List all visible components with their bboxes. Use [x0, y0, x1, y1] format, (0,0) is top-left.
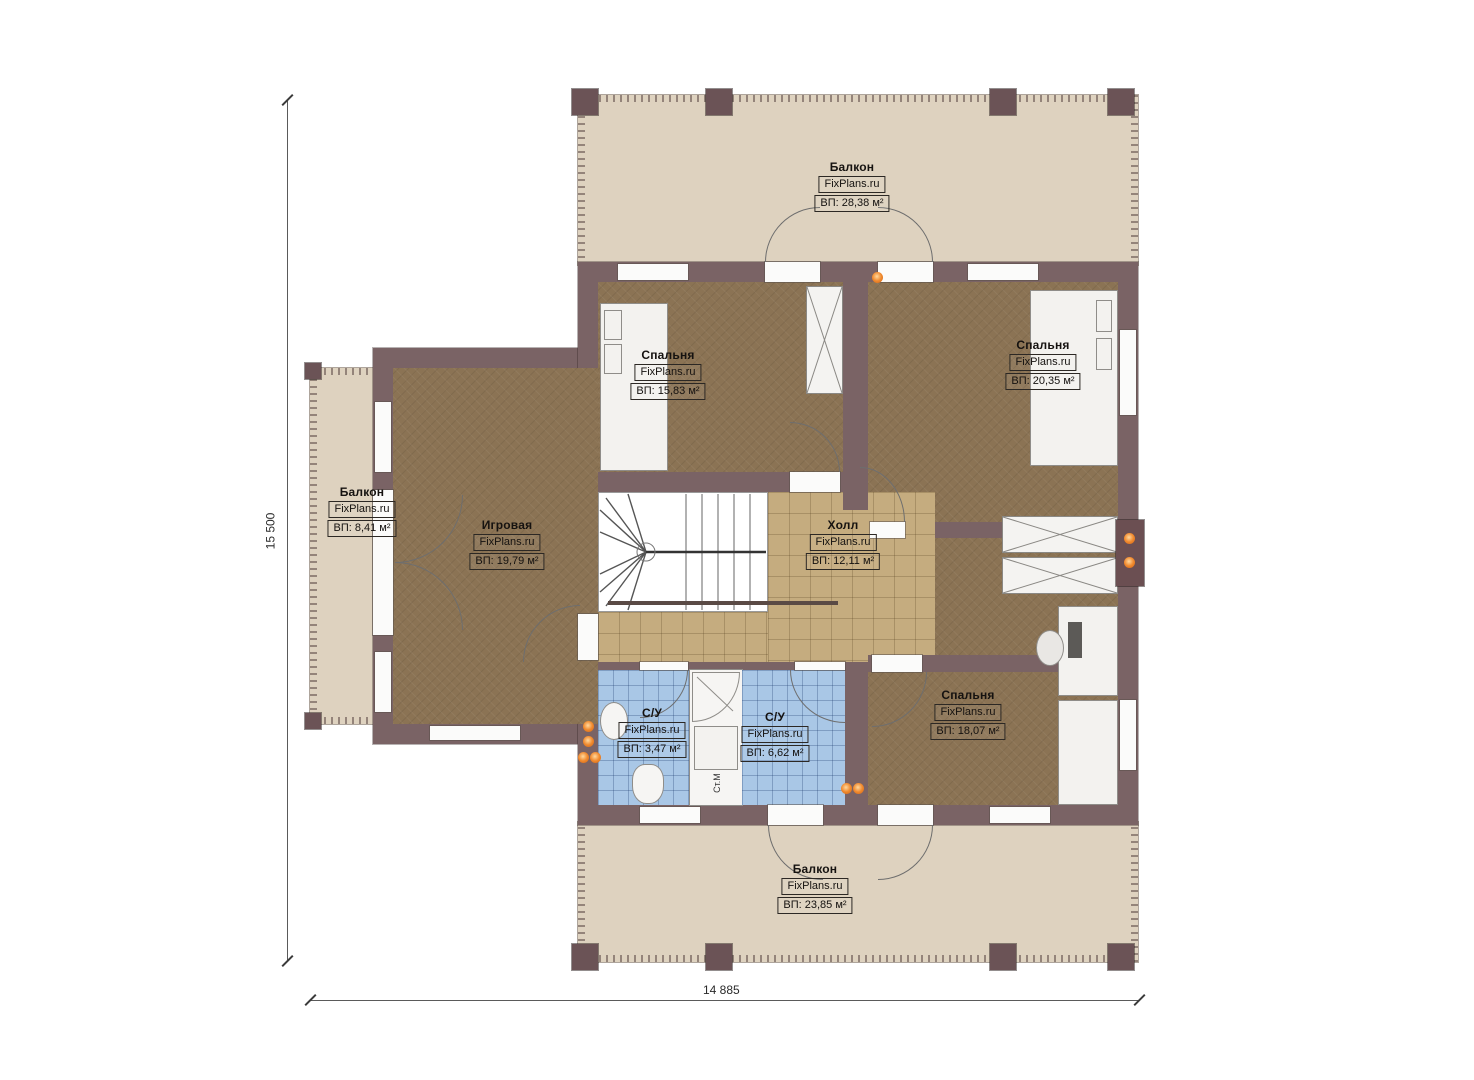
watermark: FixPlans.ru	[634, 364, 701, 381]
room-name: Балкон	[777, 862, 852, 876]
railing-hatch	[578, 955, 1138, 962]
railing-hatch	[578, 95, 1138, 102]
balcony-bottom-area	[578, 822, 1138, 962]
vent-dot	[583, 721, 594, 732]
bed-pillow	[1096, 338, 1112, 370]
vent-dot	[872, 272, 883, 283]
desk-monitor	[1068, 622, 1082, 658]
balcony-post	[572, 89, 598, 115]
dimension-line-left	[287, 100, 288, 962]
room-label-balcony-bottom: Балкон FixPlans.ru ВП: 23,85 м²	[777, 862, 852, 914]
railing-hatch	[1131, 822, 1138, 962]
vent-dot	[1124, 533, 1135, 544]
staircase	[598, 492, 768, 612]
door-opening	[790, 472, 840, 492]
room-label-bedroom-top-left: Спальня FixPlans.ru ВП: 15,83 м²	[630, 348, 705, 400]
railing-hatch	[1131, 95, 1138, 265]
floor-plan: 15 500 14 885	[0, 0, 1474, 1080]
desk	[1058, 606, 1118, 696]
room-area: ВП: 15,83 м²	[630, 383, 705, 400]
vent-dot	[590, 752, 601, 763]
window	[640, 807, 700, 823]
balcony-post	[706, 944, 732, 970]
wardrobe	[1002, 516, 1118, 594]
balcony-post	[706, 89, 732, 115]
dimension-height-label: 15 500	[263, 513, 277, 550]
watermark: FixPlans.ru	[1009, 354, 1076, 371]
door-opening	[578, 614, 598, 660]
room-label-balcony-left: Балкон FixPlans.ru ВП: 8,41 м²	[327, 485, 396, 537]
watermark: FixPlans.ru	[809, 534, 876, 551]
room-label-bath-left: С/У FixPlans.ru ВП: 3,47 м²	[617, 706, 686, 758]
room-area: ВП: 8,41 м²	[327, 520, 396, 537]
room-area: ВП: 28,38 м²	[814, 195, 889, 212]
room-name: Балкон	[814, 160, 889, 174]
balcony-post	[1108, 944, 1134, 970]
bed-pillow	[1096, 300, 1112, 332]
room-name: С/У	[740, 710, 809, 724]
watermark: FixPlans.ru	[818, 176, 885, 193]
room-label-playroom: Игровая FixPlans.ru ВП: 19,79 м²	[469, 518, 544, 570]
door-opening	[878, 262, 933, 282]
corridor-floor	[598, 612, 768, 662]
washing-machine	[694, 726, 738, 770]
room-label-hall: Холл FixPlans.ru ВП: 12,11 м²	[806, 518, 880, 570]
room-area: ВП: 3,47 м²	[617, 741, 686, 758]
window	[375, 402, 391, 472]
watermark: FixPlans.ru	[618, 722, 685, 739]
window	[990, 807, 1050, 823]
washing-machine-label: Ст.М	[712, 766, 722, 800]
vent-dot	[1124, 557, 1135, 568]
door-opening	[795, 662, 845, 670]
window	[1120, 700, 1136, 770]
chimney-panel	[1116, 520, 1144, 586]
room-area: ВП: 6,62 м²	[740, 745, 809, 762]
shower	[692, 672, 740, 722]
watermark: FixPlans.ru	[741, 726, 808, 743]
room-area: ВП: 18,07 м²	[930, 723, 1005, 740]
window	[618, 264, 688, 280]
bed-pillow	[604, 344, 622, 374]
door-opening	[765, 262, 820, 282]
watermark: FixPlans.ru	[781, 878, 848, 895]
door-opening	[872, 655, 922, 672]
railing-hatch	[578, 822, 585, 962]
watermark: FixPlans.ru	[328, 501, 395, 518]
toilet	[632, 764, 664, 804]
vent-dot	[841, 783, 852, 794]
stairwell-railing	[608, 601, 838, 605]
door-opening	[640, 662, 688, 670]
vent-dot	[578, 752, 589, 763]
balcony-post	[1108, 89, 1134, 115]
room-name: Игровая	[469, 518, 544, 532]
room-name: Спальня	[630, 348, 705, 362]
room-name: Холл	[806, 518, 880, 532]
dimension-width-label: 14 885	[703, 983, 740, 997]
room-area: ВП: 19,79 м²	[469, 553, 544, 570]
room-label-bedroom-top-right: Спальня FixPlans.ru ВП: 20,35 м²	[1005, 338, 1080, 390]
window	[968, 264, 1038, 280]
room-label-bedroom-bottom: Спальня FixPlans.ru ВП: 18,07 м²	[930, 688, 1005, 740]
room-area: ВП: 12,11 м²	[806, 553, 880, 570]
watermark: FixPlans.ru	[934, 704, 1001, 721]
vent-dot	[583, 736, 594, 747]
room-area: ВП: 20,35 м²	[1005, 373, 1080, 390]
door-opening	[768, 805, 823, 825]
room-name: Спальня	[1005, 338, 1080, 352]
room-label-bath-right: С/У FixPlans.ru ВП: 6,62 м²	[740, 710, 809, 762]
room-name: С/У	[617, 706, 686, 720]
room-label-balcony-top: Балкон FixPlans.ru ВП: 28,38 м²	[814, 160, 889, 212]
window	[375, 652, 391, 712]
chair	[1036, 630, 1064, 666]
dimension-line-bottom	[310, 1000, 1140, 1001]
vent-dot	[853, 783, 864, 794]
balcony-post	[990, 89, 1016, 115]
room-name: Балкон	[327, 485, 396, 499]
railing-hatch	[310, 368, 317, 724]
balcony-post	[305, 713, 321, 729]
window	[1120, 330, 1136, 415]
watermark: FixPlans.ru	[473, 534, 540, 551]
wardrobe	[806, 286, 843, 394]
room-area: ВП: 23,85 м²	[777, 897, 852, 914]
door-opening	[878, 805, 933, 825]
balcony-post	[572, 944, 598, 970]
balcony-post	[990, 944, 1016, 970]
railing-hatch	[578, 95, 585, 265]
bed	[1058, 700, 1118, 805]
window	[430, 726, 520, 740]
room-name: Спальня	[930, 688, 1005, 702]
bed-pillow	[604, 310, 622, 340]
staircase-treads	[598, 492, 768, 612]
balcony-post	[305, 363, 321, 379]
